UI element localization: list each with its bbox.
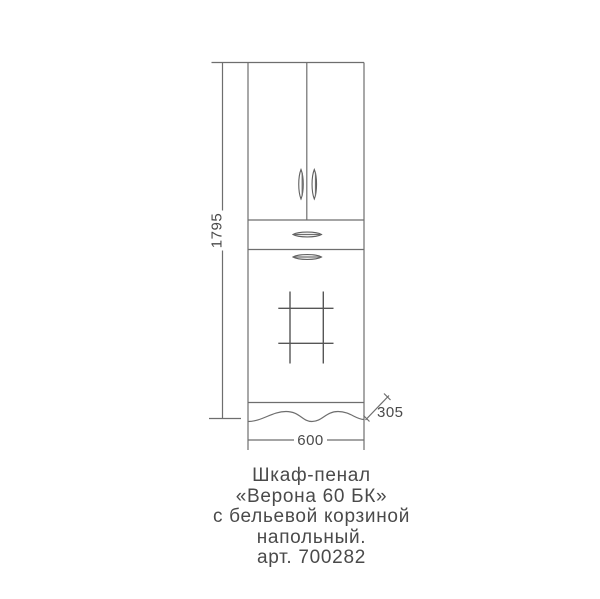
plinth-wave-edge [248, 412, 364, 422]
door-handle-left-icon [299, 170, 304, 200]
plinth [248, 403, 364, 422]
dimension-depth-label: 305 [377, 404, 404, 421]
furniture-drawing-page: 1795 [0, 0, 600, 599]
caption-article-number: арт. 700282 [161, 548, 462, 569]
dimension-width-label: 600 [297, 432, 324, 449]
cabinet-outline [212, 63, 365, 451]
caption-product-feature: с бельевой корзиной [161, 507, 462, 528]
upper-doors [248, 63, 364, 221]
dimension-depth: 305 [364, 394, 404, 422]
dimension-width: 600 [248, 432, 364, 449]
caption-product-name: «Верона 60 БК» [161, 487, 462, 508]
door-handle-right-icon [312, 170, 317, 200]
drawer [248, 232, 364, 249]
hamper-door [278, 255, 333, 364]
caption-product-type: Шкаф-пенал [161, 466, 462, 487]
laundry-basket-grid-icon [278, 292, 333, 364]
product-caption: Шкаф-пенал «Верона 60 БК» с бельевой кор… [161, 466, 462, 569]
caption-product-mounting: напольный. [161, 528, 462, 549]
hamper-handle-icon [293, 255, 322, 260]
dimension-height-label: 1795 [208, 213, 225, 248]
dimension-height: 1795 [208, 63, 241, 419]
drawer-handle-icon [293, 232, 322, 237]
